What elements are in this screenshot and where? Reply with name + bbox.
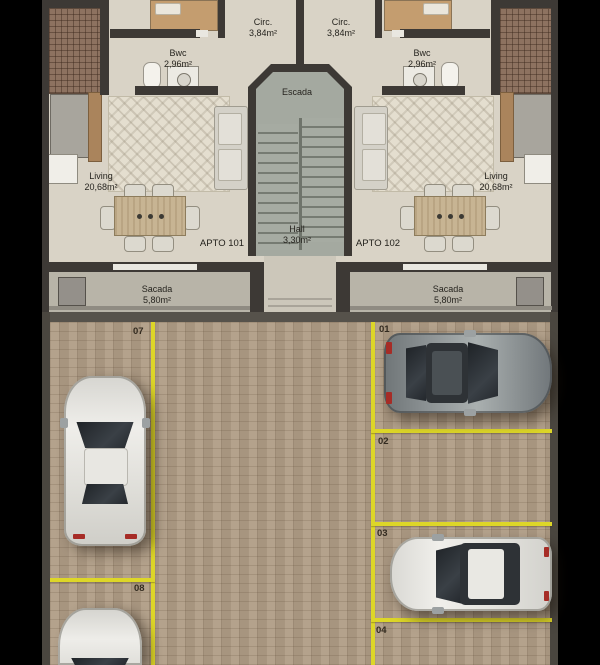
dining-chair: [452, 236, 474, 252]
room-name: Bwc: [169, 48, 186, 58]
sacada-unit-left: [58, 277, 86, 306]
car-rear-window: [406, 345, 426, 401]
car-mirror: [432, 607, 444, 614]
wall-bathroom-left: [100, 0, 109, 95]
car-roof: [84, 448, 128, 486]
wall-divider-right: [375, 0, 382, 38]
dining-chair: [424, 236, 446, 252]
dining-chair: [124, 236, 146, 252]
car-mirror: [60, 418, 68, 428]
car-space-01: [384, 333, 552, 413]
car-taillight: [386, 342, 392, 354]
room-area: 3,84m²: [249, 28, 277, 38]
table-decor-dot: [459, 214, 464, 219]
car-taillight: [125, 534, 137, 539]
wall-outer-right: [551, 0, 558, 320]
room-area: 20,68m²: [479, 182, 512, 192]
window-left: [113, 264, 197, 270]
parking-line-space-02: [371, 429, 552, 433]
room-name: Bwc: [413, 48, 430, 58]
car-windshield: [436, 543, 462, 605]
door-left: [196, 30, 208, 37]
room-label-bwc-left: Bwc 2,96m²: [164, 48, 192, 70]
room-name: Living: [484, 171, 508, 181]
dining-chair: [152, 236, 174, 252]
car-rear-window: [81, 484, 129, 504]
room-area: 3,30m²: [283, 235, 311, 245]
wall-bed-right: [400, 29, 490, 38]
sofa-cushion: [362, 113, 386, 145]
kitchen-counter-left: [50, 94, 90, 158]
parking-line-space-04: [371, 618, 552, 622]
car-space-03: [390, 537, 552, 611]
sacada-unit-right: [516, 277, 544, 306]
dining-chair: [184, 206, 200, 230]
sofa-right: [354, 106, 388, 190]
washer-door: [413, 73, 427, 87]
wall-bwc-left: [135, 86, 218, 95]
dining-table-right: [414, 196, 486, 236]
parking-wall-left: [42, 312, 50, 665]
table-decor-dot: [448, 214, 453, 219]
floorplan-rendering: Circ. 3,84m² Circ. 3,84m² Bwc 2,96m² Bwc…: [0, 0, 600, 665]
sofa-left: [214, 106, 248, 190]
rug-right: [372, 96, 494, 192]
dining-chair: [484, 206, 500, 230]
table-decor-dot: [437, 214, 442, 219]
room-label-circ-right: Circ. 3,84m²: [327, 17, 355, 39]
room-name: Circ.: [254, 17, 273, 27]
kitchen-counter-right: [512, 94, 552, 158]
car-mirror: [142, 418, 150, 428]
pillow: [423, 3, 449, 15]
car-space-07: [64, 376, 146, 546]
hall-step-line: [268, 305, 332, 307]
car-body: [58, 608, 142, 665]
mosaic-terrace-left: [48, 8, 103, 94]
car-taillight: [544, 547, 549, 557]
washer-door: [177, 73, 191, 87]
room-label-escada: Escada: [282, 87, 312, 98]
sacada-railing-left: [49, 306, 250, 310]
parking-line-vertical-right: [371, 322, 375, 665]
parking-line-space-08: [50, 578, 155, 582]
parking-line-space-03: [371, 522, 552, 526]
car-taillight: [73, 534, 85, 539]
room-label-living-right: Living 20,68m²: [479, 171, 512, 193]
parking-line-vertical-left: [151, 322, 155, 665]
sacada-railing-right: [350, 306, 552, 310]
wall-bed-left: [110, 29, 200, 38]
parking-space-number-04: 04: [376, 625, 387, 636]
parking-space-number-03: 03: [377, 528, 388, 539]
apartment-label-102: APTO 102: [356, 238, 400, 249]
kitchen-appliance-right: [524, 154, 554, 184]
window-right: [403, 264, 487, 270]
room-label-sacada-right: Sacada 5,80m²: [433, 284, 464, 306]
room-name: Hall: [289, 224, 305, 234]
bed-right: [384, 0, 452, 31]
sofa-cushion: [362, 149, 386, 181]
room-area: 20,68m²: [84, 182, 117, 192]
wall-center: [296, 0, 304, 66]
car-taillight: [386, 392, 392, 404]
room-label-circ-left: Circ. 3,84m²: [249, 17, 277, 39]
table-decor-dot: [137, 214, 142, 219]
wall-hall-jamb-right: [336, 262, 350, 312]
bed-left: [150, 0, 218, 31]
apartment-label-101: APTO 101: [200, 238, 244, 249]
sofa-cushion: [218, 113, 242, 145]
wall-outer-left: [42, 0, 49, 320]
room-area: 3,84m²: [327, 28, 355, 38]
room-name: Sacada: [433, 284, 464, 294]
mosaic-terrace-right: [499, 8, 554, 94]
room-area: 5,80m²: [434, 295, 462, 305]
parking-space-number-07: 07: [133, 326, 144, 337]
table-decor-dot: [148, 214, 153, 219]
wall-divider-left: [218, 0, 225, 38]
room-area: 2,96m²: [164, 59, 192, 69]
room-name: Escada: [282, 87, 312, 97]
parking-space-number-02: 02: [378, 436, 389, 447]
room-label-sacada-left: Sacada 5,80m²: [142, 284, 173, 306]
pillow: [155, 3, 181, 15]
room-label-living-left: Living 20,68m²: [84, 171, 117, 193]
room-label-bwc-right: Bwc 2,96m²: [408, 48, 436, 70]
room-name: Circ.: [332, 17, 351, 27]
kitchen-appliance-left: [48, 154, 78, 184]
door-right: [392, 30, 404, 37]
room-area: 2,96m²: [408, 59, 436, 69]
kitchen-cabinet-right: [500, 92, 514, 162]
room-name: Living: [89, 171, 113, 181]
parking-space-number-08: 08: [134, 583, 145, 594]
car-mirror: [432, 534, 444, 541]
car-sunroof: [432, 351, 462, 395]
parking-top-wall: [42, 312, 558, 322]
car-space-08: [58, 608, 142, 665]
table-decor-dot: [159, 214, 164, 219]
wall-bathroom-right: [491, 0, 500, 95]
dining-table-left: [114, 196, 186, 236]
room-name: Sacada: [142, 284, 173, 294]
sofa-cushion: [218, 149, 242, 181]
rug-left: [108, 96, 230, 192]
car-windshield: [468, 341, 498, 405]
kitchen-cabinet-left: [88, 92, 102, 162]
room-area: 5,80m²: [143, 295, 171, 305]
hall-step-line: [268, 298, 332, 300]
car-roof: [468, 549, 504, 599]
car-taillight: [544, 591, 549, 601]
car-mirror: [464, 330, 476, 337]
wall-hall-jamb-left: [250, 262, 264, 312]
room-label-hall: Hall 3,30m²: [283, 224, 311, 246]
hall-floor: [264, 252, 336, 312]
car-windshield: [70, 658, 130, 665]
car-mirror: [464, 409, 476, 416]
wall-bwc-right: [382, 86, 465, 95]
